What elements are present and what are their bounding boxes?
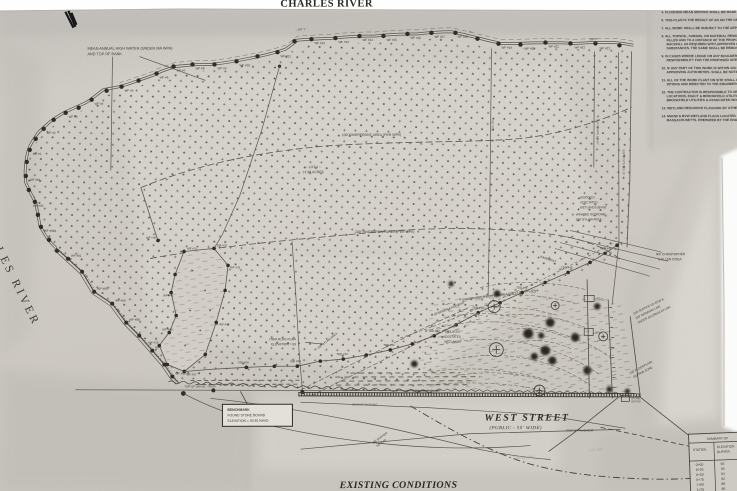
svg-text:WF #14: WF #14 [362,38,373,42]
svg-text:WF #5: WF #5 [125,89,134,93]
svg-text:SUBSTANCES. THE SAME SHALL BE: SUBSTANCES. THE SAME SHALL BE REMOVED AT [666,46,737,50]
svg-text:88: 88 [721,482,725,486]
svg-text:0+50: 0+50 [696,473,704,477]
svg-text:S75°02'30"E 370.00': S75°02'30"E 370.00' [412,389,439,393]
svg-text:WF #16: WF #16 [410,36,421,40]
svg-text:94: 94 [721,472,725,476]
svg-text:CHARLES RIVER: CHARLES RIVER [280,0,372,10]
svg-text:APPROVING AUTHORITIES. SHALL B: APPROVING AUTHORITIES. SHALL BE NOTIFIED [667,70,737,74]
svg-text:(TBM BLDG PLAN: (TBM BLDG PLAN [269,337,296,341]
svg-text:93: 93 [721,462,725,466]
svg-text:END OF PAVEMENT: END OF PAVEMENT [566,428,593,432]
svg-text:TOP OF 25% EL ~93.00: TOP OF 25% EL ~93.00 [184,384,216,388]
svg-text:WF #10: WF #10 [240,63,251,67]
svg-text:ELEVATION = 93: ELEVATION = 93 [271,342,296,346]
svg-text:L=2.2M: L=2.2M [588,446,603,452]
svg-text:WF #64: WF #64 [30,178,41,182]
svg-text:WF #63: WF #63 [33,204,44,208]
svg-text:0+25: 0+25 [696,468,704,472]
svg-text:0+00: 0+00 [696,463,704,467]
svg-text:ELEVATION: ELEVATION [717,444,735,449]
svg-text:BENCHMARK: BENCHMARK [227,408,250,412]
svg-text:WF #4: WF #4 [95,102,104,106]
svg-text:WF #15: WF #15 [386,38,397,42]
svg-text:WF #18: WF #18 [457,35,468,39]
svg-text:N/F CHRISTOPHER: N/F CHRISTOPHER [656,252,686,256]
svg-text:VEGETATED: VEGETATED [580,200,599,204]
svg-text:WOODED/: WOODED/ [580,195,595,199]
svg-text:WF #31: WF #31 [187,246,198,250]
svg-text:100' BYLAW AREA: 100' BYLAW AREA [576,217,602,221]
svg-text:WF #1: WF #1 [33,152,42,156]
svg-text:TBD #41: TBD #41 [383,343,395,347]
svg-text:WF #22: WF #22 [574,45,585,49]
svg-text:WF#/TBD GEOFORM: WF#/TBD GEOFORM [576,212,606,216]
svg-text:RESPONSIBILITY FOR THE PROPOSE: RESPONSIBILITY FOR THE PROPOSED SITE WOR… [667,58,737,62]
svg-text:& ELLEN O'DEA: & ELLEN O'DEA [658,257,683,261]
svg-text:STATION: STATION [693,447,707,452]
svg-text:13. WETLAND RESOURCE FLAGGING: 13. WETLAND RESOURCE FLAGGING BY OTHERS [662,106,737,110]
svg-text:WF #40: WF #40 [162,328,173,332]
svg-text:EXISTING CONDITIONS: EXISTING CONDITIONS [339,480,458,491]
svg-text:WF #13: WF #13 [338,40,349,44]
svg-text:WF #17: WF #17 [434,35,445,39]
svg-text:TBD #46: TBD #46 [600,246,612,250]
svg-text:85: 85 [722,487,726,491]
svg-text:±1.84 ACRES: ±1.84 ACRES [303,170,325,174]
svg-text:500 #39: 500 #39 [290,359,301,363]
svg-text:WF #30: WF #30 [146,236,157,240]
svg-text:0+75: 0+75 [696,478,704,482]
svg-text:N: N [469,30,471,34]
svg-text:WF #3: WF #3 [69,115,78,119]
svg-text:WF #6: WF #6 [160,76,169,80]
svg-text:1+25: 1+25 [697,488,705,491]
svg-text:100' RIVERFRONT AREA (PER WPA): 100' RIVERFRONT AREA (PER WPA) [342,133,401,137]
svg-text:N37°25'54"E 145.67': N37°25'54"E 145.67' [596,119,600,145]
svg-text:S26°40'10"E 203.10': S26°40'10"E 203.10' [622,149,626,175]
svg-text:WF #19: WF #19 [501,46,512,50]
svg-text:WF #61: WF #61 [71,254,82,258]
svg-text:WF #41: WF #41 [163,294,174,298]
svg-text:BROOKFIELD UTILITIES & ASSOCIA: BROOKFIELD UTILITIES & ASSOCIATED WORKS [667,98,737,102]
svg-text:CONC: CONC [595,297,603,301]
svg-text:5. THIS PLAN IS THE RESULT OF: 5. THIS PLAN IS THE RESULT OF AN ON THE … [661,18,737,22]
svg-text:WF #37: WF #37 [186,372,197,376]
svg-text:1+00: 1+00 [696,483,704,487]
svg-text:4. FLOODING MEAN SERVICE SHAL: 4. FLOODING MEAN SERVICE SHALL BE MADE O… [661,10,737,14]
svg-text:WF #21: WF #21 [548,44,559,48]
svg-text:200' RIVERFRONT AREA (PER WPA): 200' RIVERFRONT AREA (PER WPA) [355,230,414,234]
svg-text:BOUND: BOUND [631,399,641,403]
svg-text:WEST STREET: WEST STREET [484,412,569,423]
svg-text:WF #39: WF #39 [148,341,159,345]
svg-text:(PUBLIC - 50' WIDE): (PUBLIC - 50' WIDE) [489,426,542,431]
svg-text:SUMMARY OF: SUMMARY OF [707,436,729,441]
svg-text:WETLANDS (BVW): WETLANDS (BVW) [580,205,606,209]
svg-text:WF #8: WF #8 [196,66,205,70]
svg-text:WF #2: WF #2 [47,131,56,135]
svg-text:WF #32: WF #32 [217,243,228,247]
svg-text:FOUND STONE BOUND: FOUND STONE BOUND [227,413,265,417]
svg-text:WF #58: WF #58 [129,318,140,322]
svg-text:AND TOP OF BANK: AND TOP OF BANK [87,52,122,56]
svg-text:~ LOT 1 ~: ~ LOT 1 ~ [306,165,321,169]
svg-text:7. ALL WORK SHALL BE SUBJECT: 7. ALL WORK SHALL BE SUBJECT TO THE APPR… [661,26,737,30]
svg-text:WF #62: WF #62 [44,229,55,233]
svg-text:WF #20: WF #20 [524,47,535,51]
svg-text:93: 93 [721,467,725,471]
svg-text:DITIONS AND DIRECTED TO THE EN: DITIONS AND DIRECTED TO THE ENGINEER AND [667,82,737,86]
svg-text:92: 92 [721,477,725,481]
svg-text:WF #33: WF #33 [230,265,241,269]
svg-text:WF #23: WF #23 [599,46,610,50]
svg-text:WF #12: WF #12 [314,41,325,45]
svg-text:MASSACHUSETTS. PREPARED BY THE: MASSACHUSETTS. PREPARED BY THE ENGINEER [667,118,737,122]
svg-text:WF #59: WF #59 [115,299,126,303]
svg-text:WF #35: WF #35 [219,322,230,326]
svg-text:BUFFER: BUFFER [717,450,731,455]
svg-text:S82°E: S82°E [589,37,597,42]
svg-text:WF #60: WF #60 [97,287,108,291]
svg-text:EDGE OF PAVEMENT: EDGE OF PAVEMENT [352,403,378,406]
svg-text:WF #9: WF #9 [218,66,227,70]
svg-text:500 #38: 500 #38 [238,360,249,364]
svg-text:TBD #40: TBD #40 [336,352,348,356]
svg-text:MEAN ANNUAL HIGH WATER (UNDER: MEAN ANNUAL HIGH WATER (UNDER MA WPA) [87,47,173,51]
svg-text:WALL: WALL [595,330,603,334]
svg-text:N11°02'E: N11°02'E [491,120,495,132]
svg-text:TOP OF BK: TOP OF BK [342,388,357,392]
svg-text:ELEVATION = 93.81 NAVD: ELEVATION = 93.81 NAVD [227,419,269,423]
svg-text:WF #11: WF #11 [281,54,292,58]
